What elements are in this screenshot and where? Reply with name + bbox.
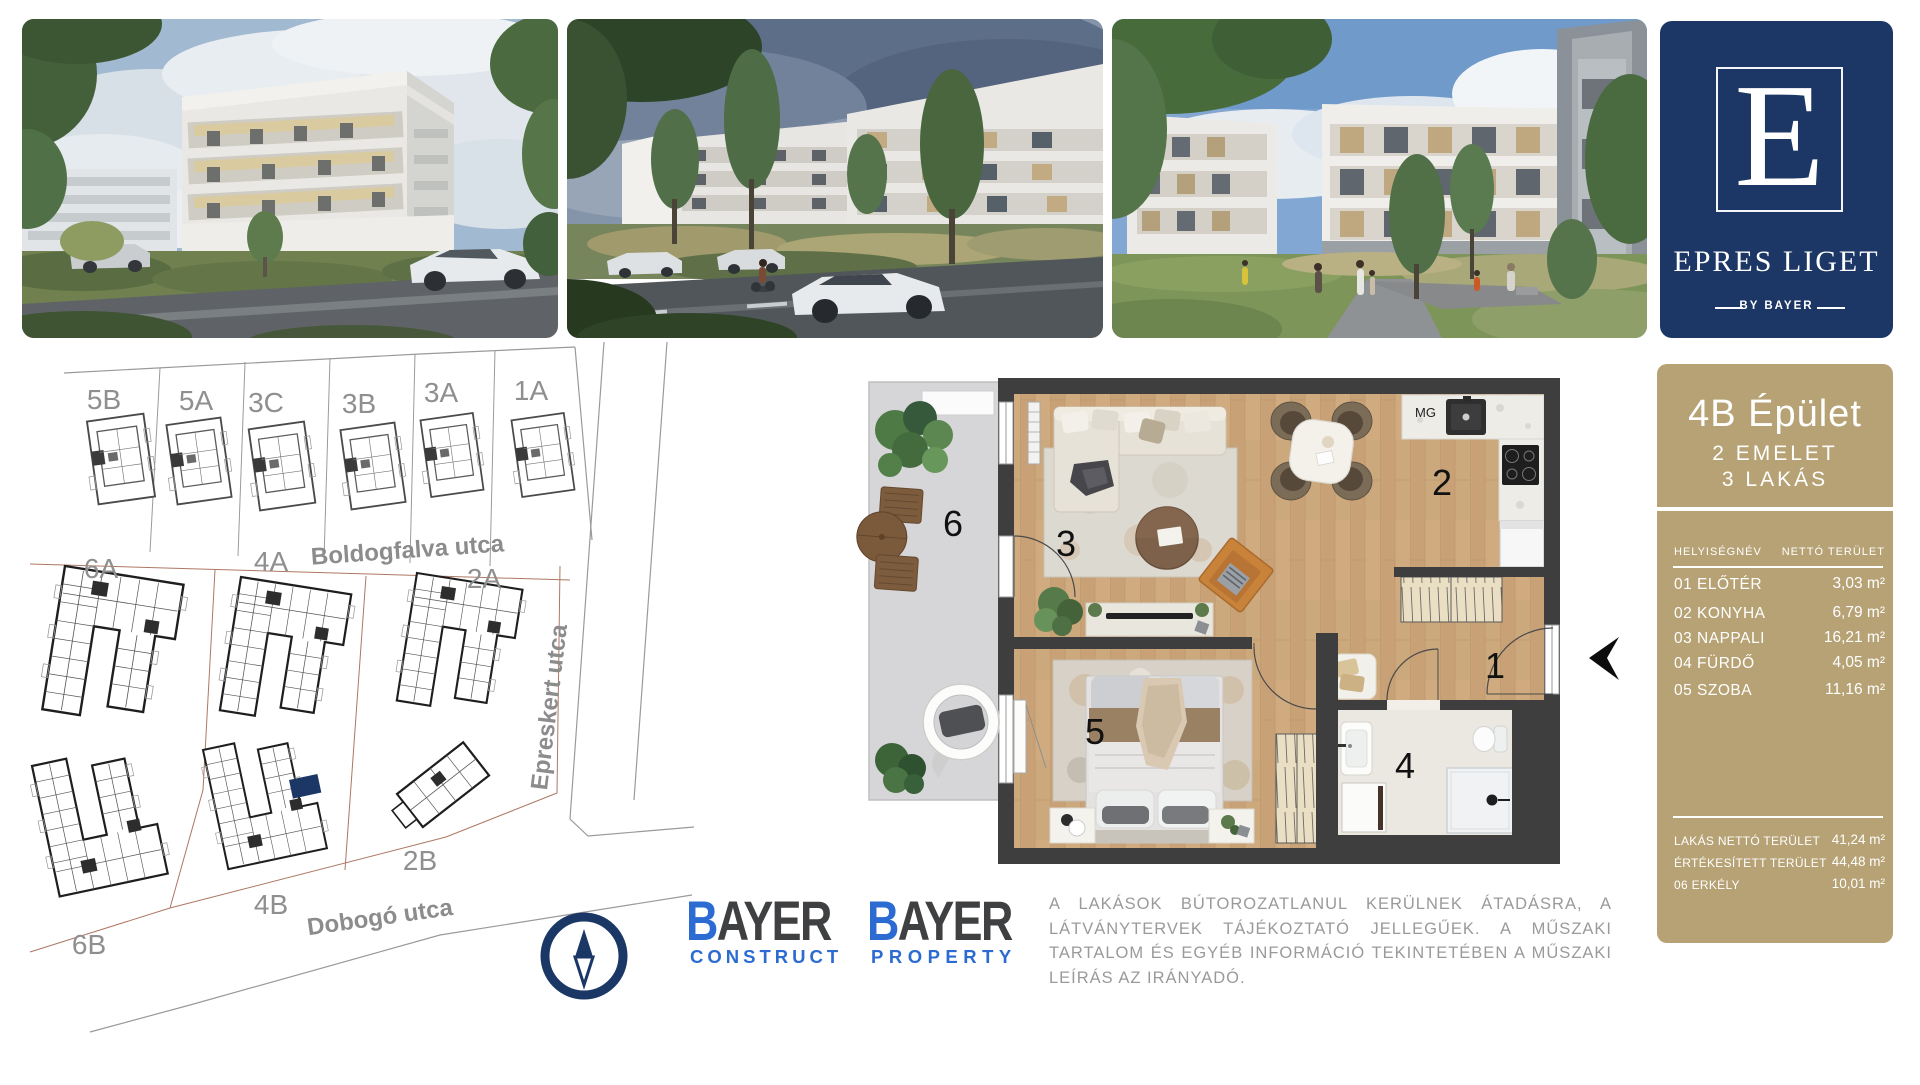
svg-text:Dobogó utca: Dobogó utca xyxy=(305,894,455,941)
svg-text:6B: 6B xyxy=(72,929,106,960)
svg-text:3C: 3C xyxy=(248,387,284,418)
svg-text:5: 5 xyxy=(1085,711,1105,752)
svg-text:1A: 1A xyxy=(514,375,549,406)
svg-text:3: 3 xyxy=(1056,523,1076,564)
svg-text:3A: 3A xyxy=(424,377,459,408)
svg-text:2: 2 xyxy=(1432,462,1452,503)
svg-text:4B: 4B xyxy=(254,889,288,920)
svg-text:1: 1 xyxy=(1485,645,1505,686)
svg-text:MG: MG xyxy=(1415,405,1436,420)
svg-text:2A: 2A xyxy=(467,563,502,594)
svg-text:5B: 5B xyxy=(87,384,121,415)
svg-text:4: 4 xyxy=(1395,745,1415,786)
svg-text:6A: 6A xyxy=(84,553,119,584)
svg-text:5A: 5A xyxy=(179,385,214,416)
svg-text:Epreskert utca: Epreskert utca xyxy=(526,622,573,791)
svg-text:4A: 4A xyxy=(254,546,289,577)
svg-text:2B: 2B xyxy=(403,845,437,876)
svg-text:6: 6 xyxy=(943,503,963,544)
svg-text:3B: 3B xyxy=(342,388,376,419)
